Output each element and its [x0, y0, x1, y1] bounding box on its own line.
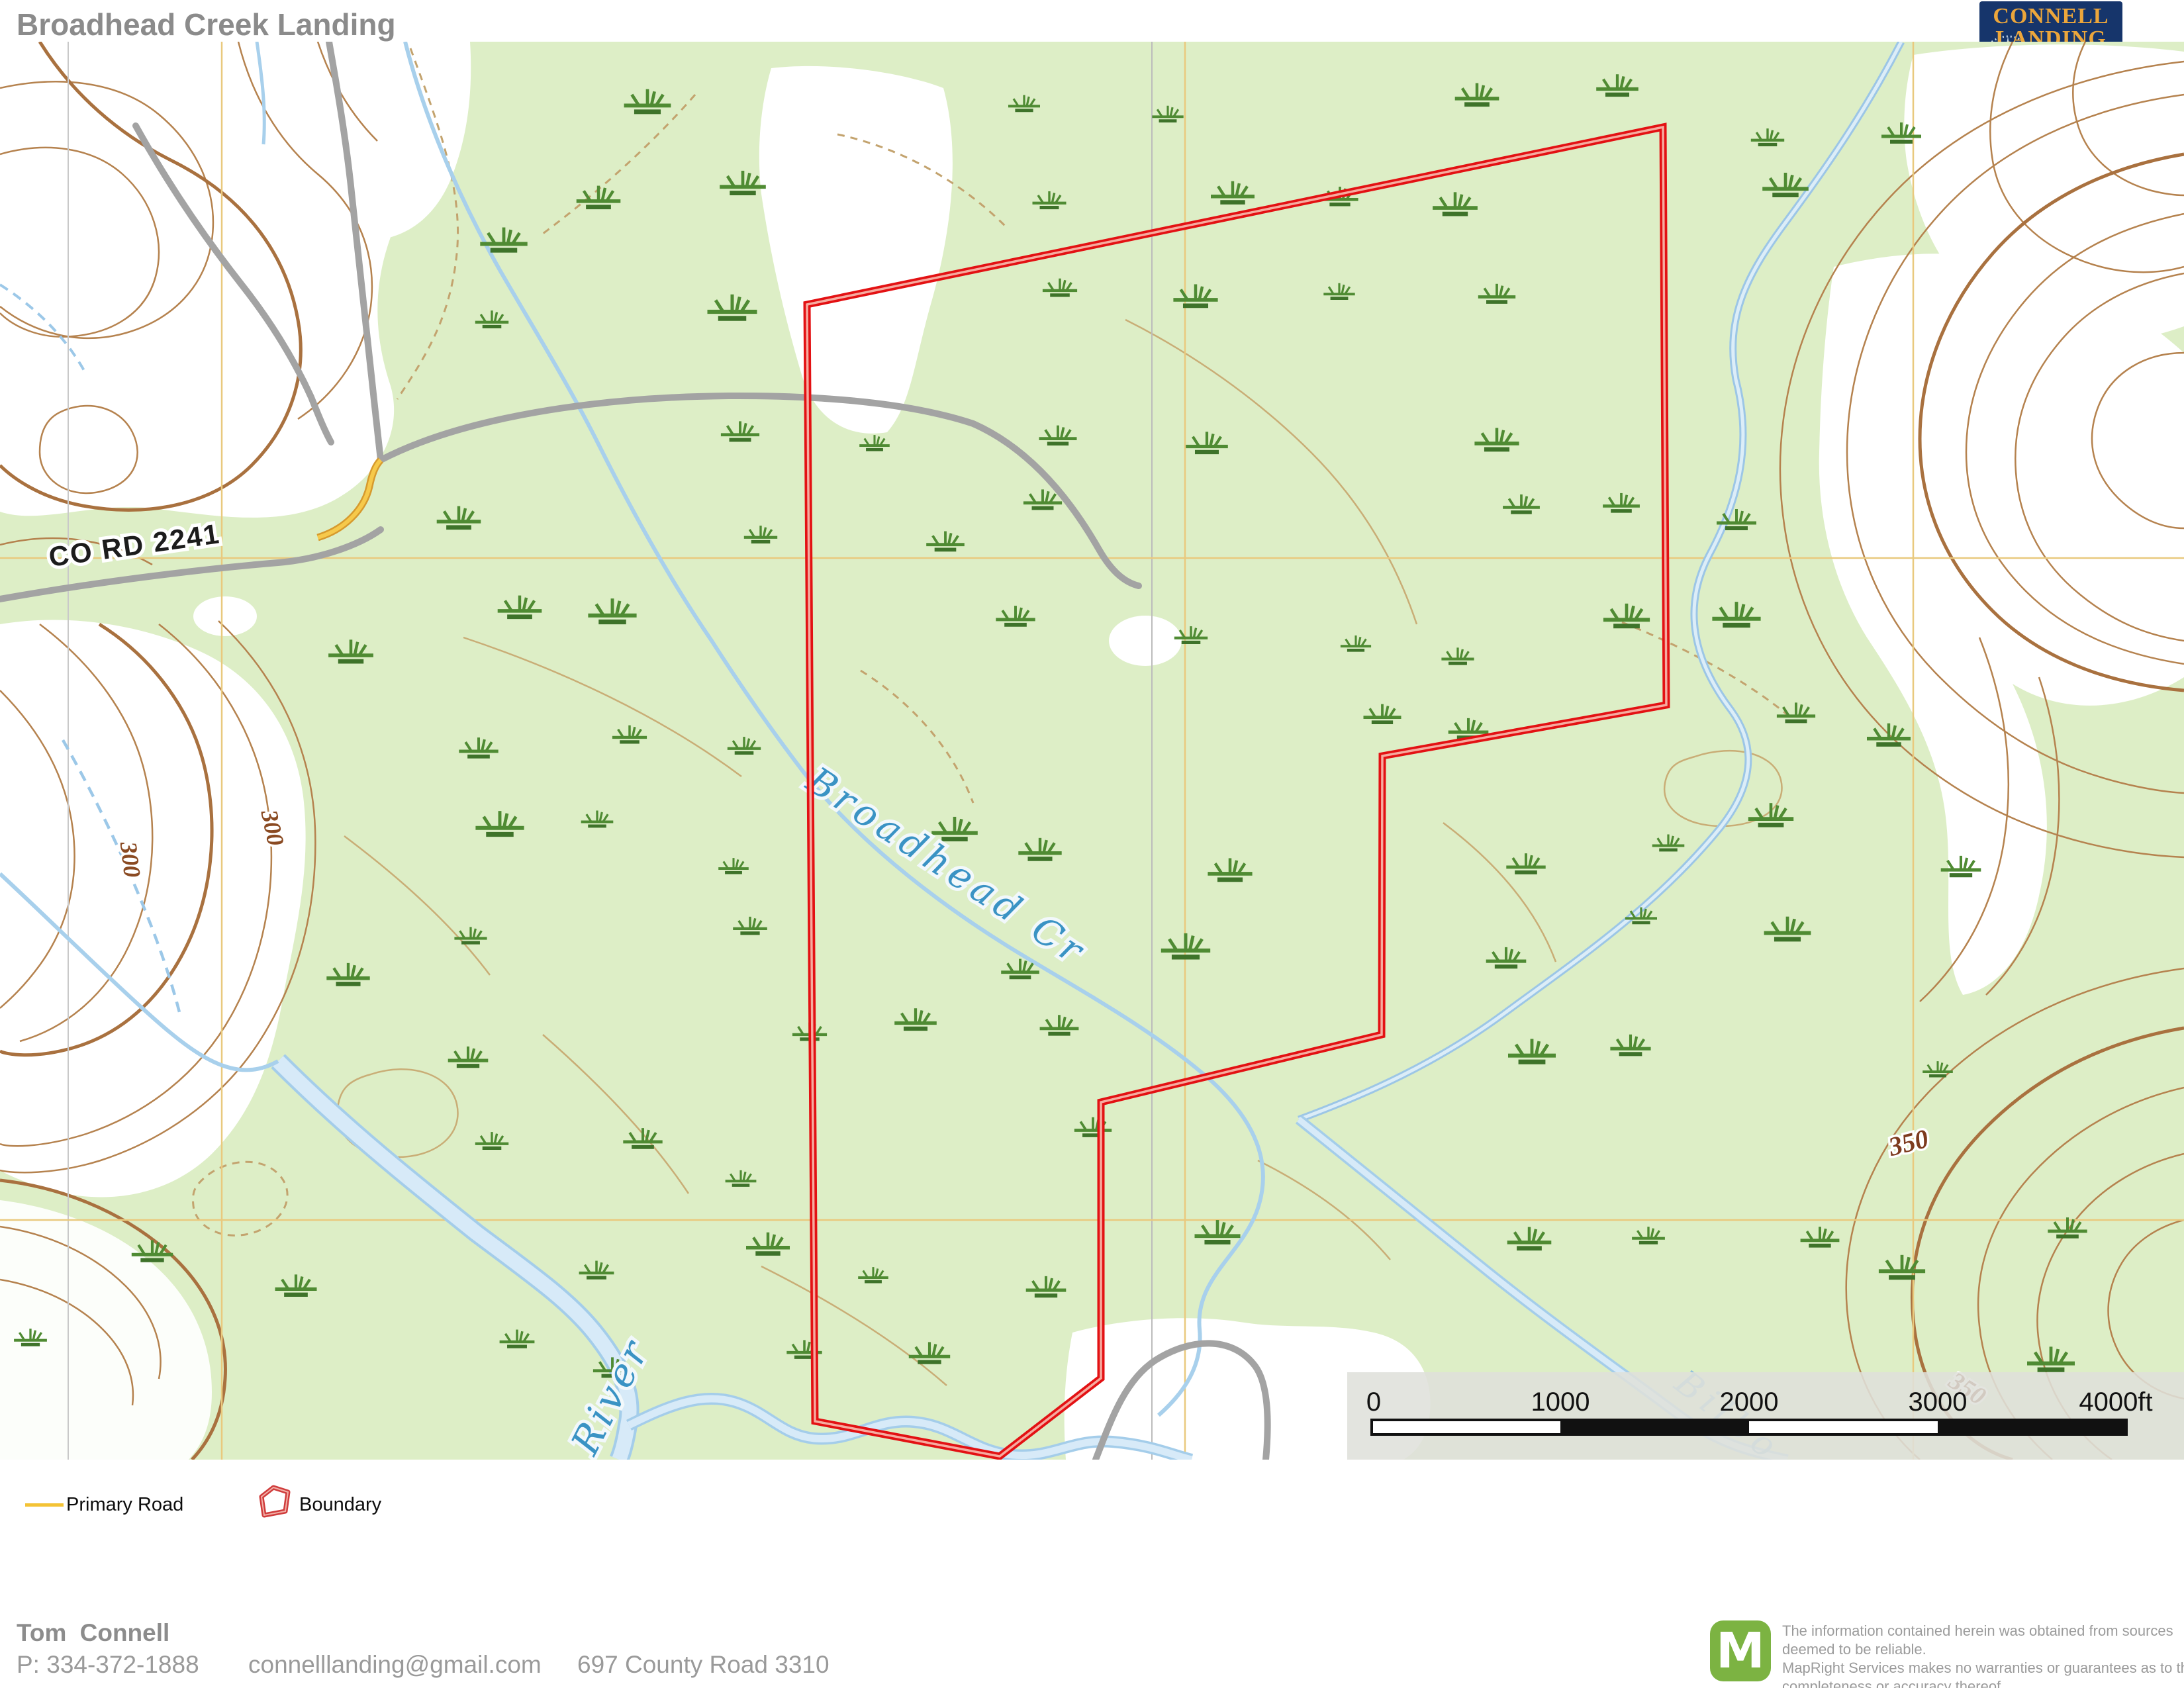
disclaimer-line-4: completeness or accuracy thereof. [1782, 1677, 2184, 1688]
legend-boundary-label: Boundary [299, 1494, 381, 1516]
primary-road-swatch [25, 1503, 64, 1507]
scale-tick-3000: 3000 [1909, 1387, 1968, 1417]
disclaimer-line-3: MapRight Services makes no warranties or… [1782, 1659, 2184, 1677]
mapright-logo: M [1710, 1620, 1771, 1681]
scale-tick-4000ft: 4000ft [2079, 1387, 2152, 1417]
scale-tick-1000: 1000 [1531, 1387, 1590, 1417]
brand-name-line1: CONNELL [1979, 4, 2122, 29]
agent-phone: P: 334-372-1888 [17, 1651, 199, 1679]
boundary-swatch-icon [254, 1483, 292, 1521]
disclaimer-line-1: The information contained herein was obt… [1782, 1622, 2184, 1640]
disclaimer-line-2: deemed to be reliable. [1782, 1640, 2184, 1659]
scale-tick-2000: 2000 [1720, 1387, 1779, 1417]
agent-address: 697 County Road 3310 [577, 1651, 830, 1679]
legend-primary-road-label: Primary Road [66, 1494, 183, 1516]
contour-label-300-a: 300 [115, 839, 146, 878]
disclaimer: The information contained herein was obt… [1782, 1622, 2184, 1688]
scale-tick-0: 0 [1366, 1387, 1381, 1417]
page: Broadhead Creek Landing Pike County, Ala… [0, 0, 2184, 1688]
map-canvas: Broadhead Cr River Bilbo 300 300 350 350… [0, 42, 2184, 1460]
agent-name: Tom Connell [17, 1619, 169, 1647]
page-title: Broadhead Creek Landing [17, 7, 396, 42]
topo-map: Broadhead Cr River Bilbo 300 300 350 350… [0, 42, 2184, 1460]
map-legend: Primary Road Boundary [0, 1460, 2184, 1546]
scale-bar: 0 1000 2000 3000 4000ft [1347, 1372, 2184, 1460]
agent-email: connelllanding@gmail.com [248, 1651, 542, 1679]
